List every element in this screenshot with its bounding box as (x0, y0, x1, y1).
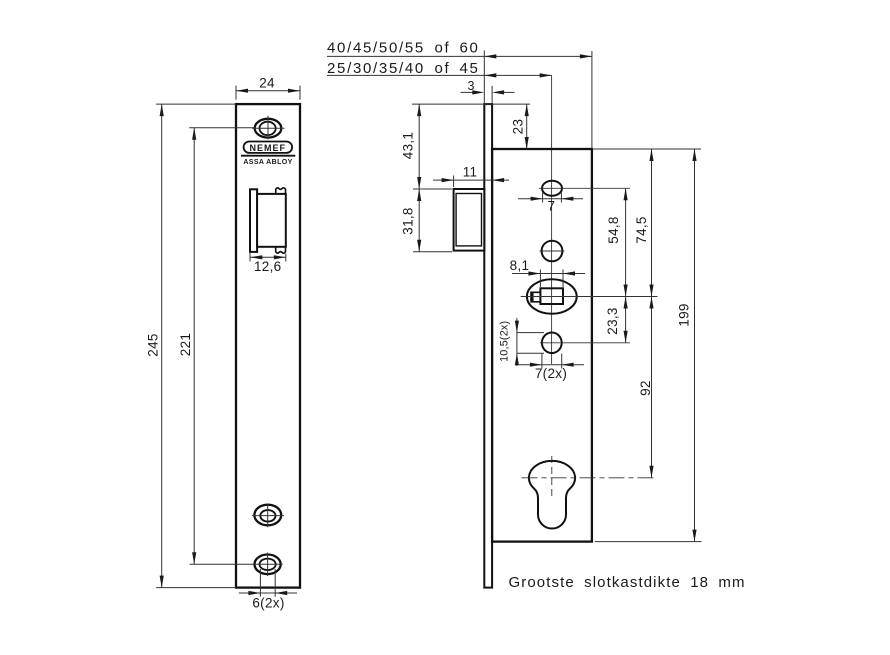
svg-text:7(2x): 7(2x) (535, 366, 567, 381)
svg-text:74,5: 74,5 (634, 216, 649, 243)
svg-text:245: 245 (146, 333, 161, 356)
svg-text:199: 199 (677, 303, 692, 326)
svg-text:24: 24 (259, 75, 275, 90)
svg-text:Grootste slotkastdikte 18 mm: Grootste slotkastdikte 18 mm (509, 574, 746, 591)
svg-text:221: 221 (178, 333, 193, 356)
svg-text:31,8: 31,8 (401, 207, 416, 234)
svg-text:43,1: 43,1 (401, 132, 416, 159)
svg-text:54,8: 54,8 (606, 216, 621, 243)
svg-text:6(2x): 6(2x) (252, 596, 284, 611)
svg-text:23: 23 (511, 119, 526, 135)
svg-text:3: 3 (468, 79, 475, 93)
svg-text:10,5(2x): 10,5(2x) (498, 321, 510, 362)
svg-text:8,1: 8,1 (510, 258, 530, 273)
svg-text:92: 92 (638, 380, 653, 396)
svg-text:ASSA ABLOY: ASSA ABLOY (243, 159, 292, 166)
svg-text:12,6: 12,6 (254, 259, 281, 274)
svg-text:7: 7 (547, 199, 555, 214)
svg-text:11: 11 (463, 165, 478, 180)
svg-text:NEMEF: NEMEF (250, 143, 287, 153)
svg-text:23,3: 23,3 (605, 307, 620, 334)
